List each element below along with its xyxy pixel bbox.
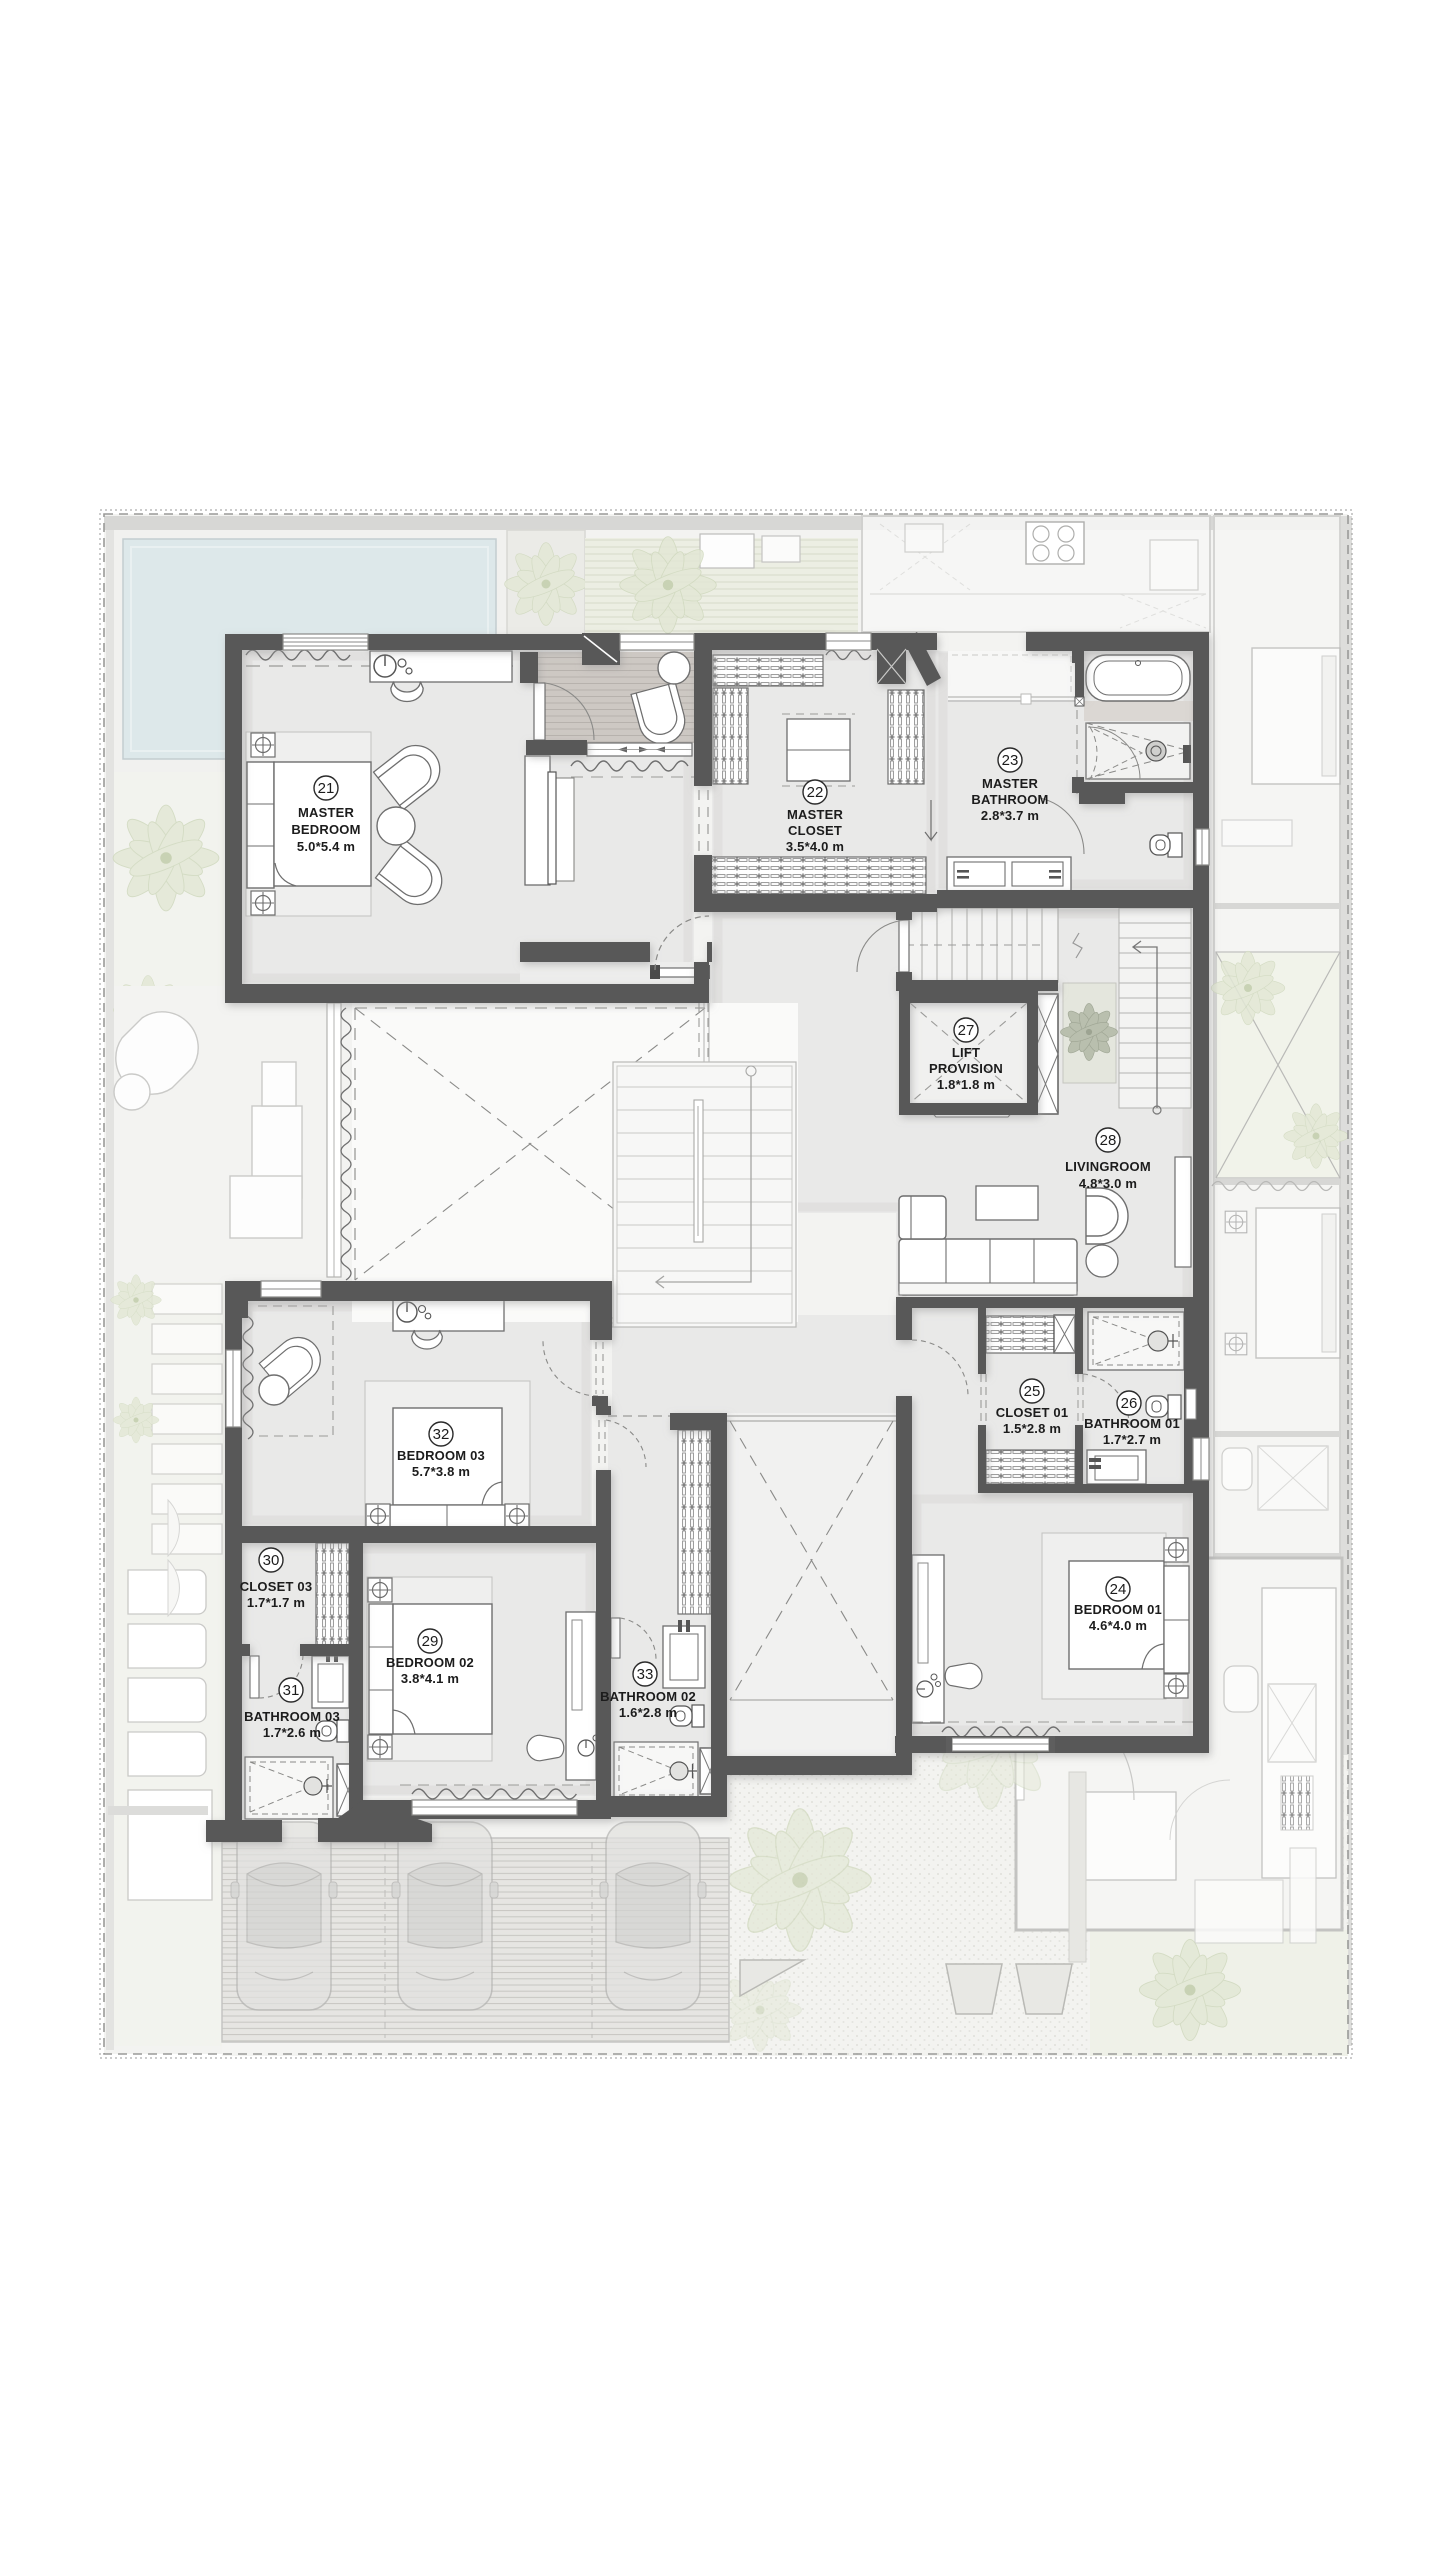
svg-text:26: 26: [1121, 1395, 1138, 1412]
svg-text:1.6*2.8 m: 1.6*2.8 m: [619, 1705, 677, 1720]
svg-text:4.8*3.0 m: 4.8*3.0 m: [1079, 1176, 1137, 1191]
svg-text:21: 21: [318, 780, 335, 797]
svg-text:25: 25: [1024, 1383, 1041, 1400]
svg-text:PROVISION: PROVISION: [929, 1061, 1003, 1076]
svg-text:3.8*4.1 m: 3.8*4.1 m: [401, 1671, 459, 1686]
svg-text:2.8*3.7 m: 2.8*3.7 m: [981, 808, 1039, 823]
svg-text:27: 27: [958, 1022, 975, 1039]
svg-text:CLOSET 03: CLOSET 03: [240, 1579, 313, 1594]
svg-text:BATHROOM 03: BATHROOM 03: [244, 1709, 340, 1724]
svg-text:22: 22: [807, 784, 824, 801]
svg-text:LIVINGROOM: LIVINGROOM: [1065, 1159, 1151, 1174]
svg-text:1.7*2.6 m: 1.7*2.6 m: [263, 1725, 321, 1740]
svg-text:MASTER: MASTER: [298, 805, 355, 820]
svg-text:MASTER: MASTER: [982, 776, 1039, 791]
svg-text:BATHROOM 01: BATHROOM 01: [1084, 1416, 1180, 1431]
svg-text:32: 32: [433, 1426, 450, 1443]
svg-text:1.7*2.7 m: 1.7*2.7 m: [1103, 1432, 1161, 1447]
svg-text:BEDROOM: BEDROOM: [291, 822, 360, 837]
svg-text:BEDROOM 01: BEDROOM 01: [1074, 1602, 1162, 1617]
svg-text:CLOSET: CLOSET: [788, 823, 842, 838]
svg-text:33: 33: [637, 1666, 654, 1683]
svg-text:LIFT: LIFT: [952, 1045, 980, 1060]
svg-text:MASTER: MASTER: [787, 807, 844, 822]
svg-text:1.7*1.7 m: 1.7*1.7 m: [247, 1595, 305, 1610]
svg-text:30: 30: [263, 1552, 280, 1569]
svg-text:29: 29: [422, 1633, 439, 1650]
svg-text:5.7*3.8 m: 5.7*3.8 m: [412, 1464, 470, 1479]
svg-text:CLOSET 01: CLOSET 01: [996, 1405, 1069, 1420]
svg-text:4.6*4.0 m: 4.6*4.0 m: [1089, 1618, 1147, 1633]
svg-text:28: 28: [1100, 1132, 1117, 1149]
svg-text:1.5*2.8 m: 1.5*2.8 m: [1003, 1421, 1061, 1436]
svg-text:31: 31: [283, 1682, 300, 1699]
svg-text:5.0*5.4 m: 5.0*5.4 m: [297, 839, 355, 854]
svg-text:24: 24: [1110, 1581, 1127, 1598]
svg-text:BEDROOM 02: BEDROOM 02: [386, 1655, 474, 1670]
svg-text:BATHROOM: BATHROOM: [971, 792, 1048, 807]
svg-text:23: 23: [1002, 752, 1019, 769]
svg-text:BEDROOM 03: BEDROOM 03: [397, 1448, 485, 1463]
svg-text:3.5*4.0 m: 3.5*4.0 m: [786, 839, 844, 854]
svg-text:BATHROOM 02: BATHROOM 02: [600, 1689, 696, 1704]
svg-text:1.8*1.8 m: 1.8*1.8 m: [937, 1077, 995, 1092]
